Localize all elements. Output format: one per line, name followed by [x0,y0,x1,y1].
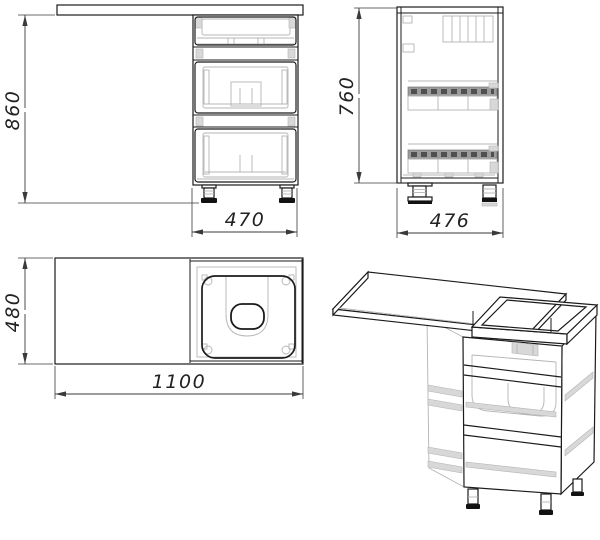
slide-fitting [489,83,498,88]
side-view: 760 476 [336,7,503,238]
gap-clip [288,117,295,126]
hidden-mount [445,173,453,177]
front-leg-left [201,185,217,203]
iso-leg-front-right [539,494,553,515]
leg-stem [483,185,496,198]
sink-drain-hole [231,304,264,329]
leg-stem [282,188,292,198]
leg-foot-pad [482,198,497,202]
dim-front-height: 860 [2,15,199,203]
drawing-sheet: 860 470 [0,0,600,540]
dim-top-length: 1100 [55,366,303,399]
leg-foot [482,203,497,206]
leg-stem [204,188,214,198]
leg-stem [468,489,478,504]
leg-foot [279,198,295,203]
front-countertop [57,5,303,15]
dim-side-height-label: 760 [336,76,358,117]
leg-stem [413,186,426,197]
dim-top-depth: 480 [2,258,53,364]
iso-leg-back-right [571,479,584,496]
slide-fitting [489,146,498,151]
side-leg-back [408,183,432,204]
leg-foot [201,198,217,203]
hidden-corner-fitting [289,17,296,28]
hidden-corner-fitting [195,17,202,28]
dim-front-height-label: 860 [2,90,24,131]
top-view: 480 1100 [2,258,303,399]
hidden-mount [475,173,483,177]
iso-left-side-hidden [427,318,464,487]
hidden-slide-rail [428,461,462,473]
gap-clip [288,49,295,58]
gap-clip [196,117,203,126]
slide-fitting [490,99,498,110]
hidden-slide-rail [428,399,462,411]
hidden-slide-rail [428,447,462,459]
dim-top-length-label: 1100 [152,371,206,393]
dim-top-depth-label: 480 [2,292,24,333]
dim-side-depth-label: 476 [430,210,471,232]
technical-drawing: 860 470 [0,0,600,540]
leg-stem [573,479,582,492]
dim-front-width-label: 470 [225,209,266,231]
hidden-mount [413,173,421,177]
side-leg-front [482,185,497,206]
top-countertop-outline [55,258,303,364]
leg-foot [408,197,432,201]
isometric-view [333,272,597,515]
iso-leg-front-left [466,489,480,509]
slide-fitting [490,162,498,173]
dim-side-height: 760 [336,8,407,183]
hidden-slide-rail [428,385,462,397]
leg-foot-pad [408,201,432,204]
front-leg-right [279,185,295,203]
leg-foot [539,510,553,515]
iso-countertop [333,272,566,337]
front-view: 860 470 [2,5,303,237]
gap-clip [196,49,203,58]
leg-foot [466,504,480,509]
hidden-edge [427,318,429,468]
leg-foot [571,492,584,496]
